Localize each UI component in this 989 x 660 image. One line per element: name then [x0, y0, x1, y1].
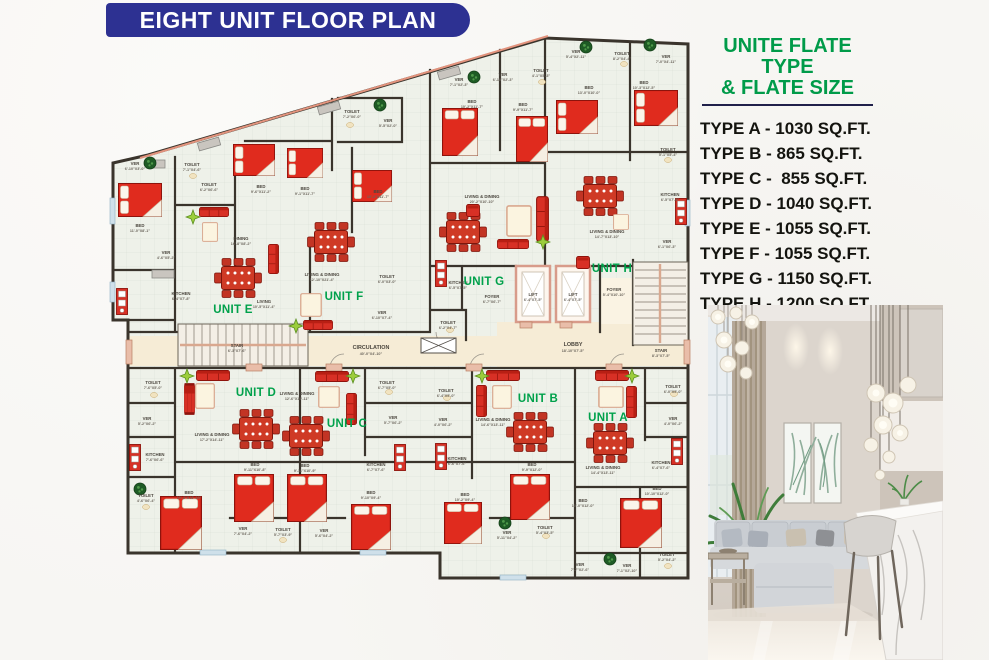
room-label: TOILET7'-1"X4'-6" — [183, 162, 202, 172]
room-label: TOILET4'-1"X5'-3" — [532, 68, 551, 78]
unit-label-d: UNIT D — [236, 387, 276, 399]
room-label: LOBBY18'-10"X7'-5" — [562, 342, 585, 353]
unit-label-c: UNIT C — [327, 418, 367, 430]
spotlight-glow — [817, 327, 843, 375]
stair-right — [633, 262, 688, 345]
room-label: TOILET6'-0"X5'-0" — [664, 384, 683, 394]
room-label: TOILET6'-2"X6'-6" — [200, 182, 219, 192]
room-label: KITCHEN6'-7"X7'-6" — [366, 462, 385, 472]
interior-photo — [708, 305, 943, 660]
room-label: KITCHEN7'-6"X6'-6" — [145, 452, 164, 462]
room-label: TOILET6'-0"X3'-0" — [378, 274, 397, 284]
room-label: TOILET5'-1"X5'-4" — [659, 147, 678, 157]
room-label: KITCHEN6'-4"X7'-6" — [651, 460, 670, 470]
room-label: TOILET7'-6"X5'-0" — [144, 380, 163, 390]
room-label: KITCHEN6'-5"X7'-9" — [660, 192, 679, 202]
room-label: TOILET6'-7"X5'-0" — [378, 380, 397, 390]
unit-label-f: UNIT F — [325, 291, 364, 303]
room-label: TOILET5'-7"X3'-9" — [274, 527, 293, 537]
room-label: TOILET4'-6"X6'-4" — [137, 493, 156, 503]
room-label: TOILET5'-4"X3'-5" — [536, 525, 555, 535]
floor-plan-poster: EIGHT UNIT FLOOR PLAN UNITE FLATE TYPE &… — [0, 0, 989, 660]
unit-label-a: UNIT A — [588, 412, 628, 424]
room-label: TOILET6'-4"X5'-0" — [437, 388, 456, 398]
room-label: KITCHEN6'-6"X7'-6" — [447, 456, 466, 466]
spotlight-glow — [783, 323, 809, 371]
room-label: DINING16'-8"X8'-2" — [231, 236, 252, 246]
room-label: KITCHEN6'-4"X7'-8" — [171, 291, 190, 301]
unit-label-b: UNIT B — [518, 393, 558, 405]
unit-label-g: UNIT G — [464, 276, 505, 288]
room-label: TOILET5'-2"X4'-2" — [658, 552, 677, 562]
room-label: TOILET6'-2"X4'-7" — [439, 320, 458, 330]
room-label: TOILET7'-2"X6'-0" — [343, 109, 362, 119]
duct-box — [421, 338, 456, 353]
room-label: FOYER6'-7"X6'-7" — [483, 294, 502, 304]
unit-label-e: UNIT E — [213, 304, 253, 316]
room-label: TOILET8'-2"X4'-4" — [613, 51, 632, 61]
unit-label-h: UNIT H — [592, 263, 632, 275]
